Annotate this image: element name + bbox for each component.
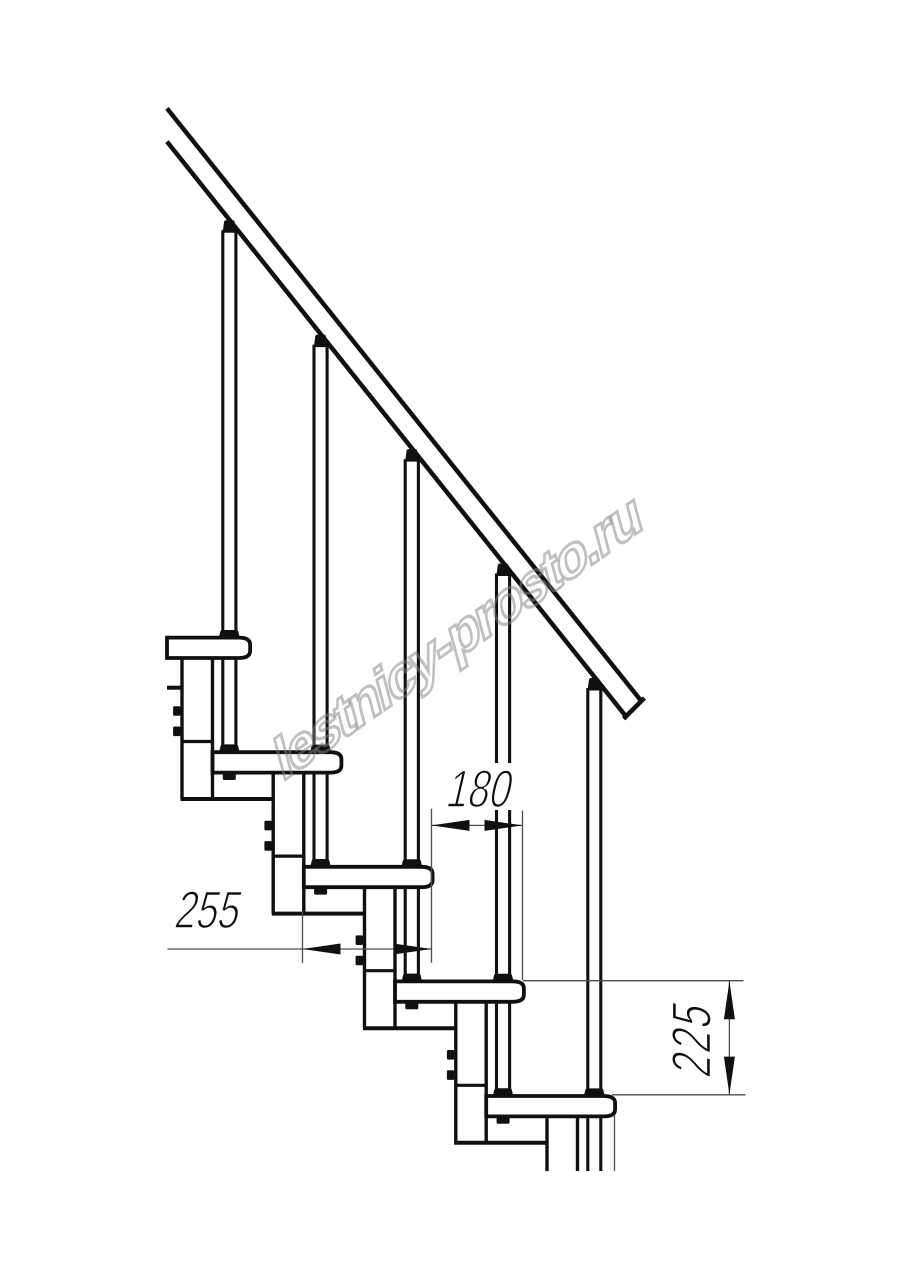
svg-text:180: 180: [442, 760, 519, 819]
svg-text:255: 255: [170, 881, 247, 940]
svg-text:225: 225: [661, 994, 723, 1081]
